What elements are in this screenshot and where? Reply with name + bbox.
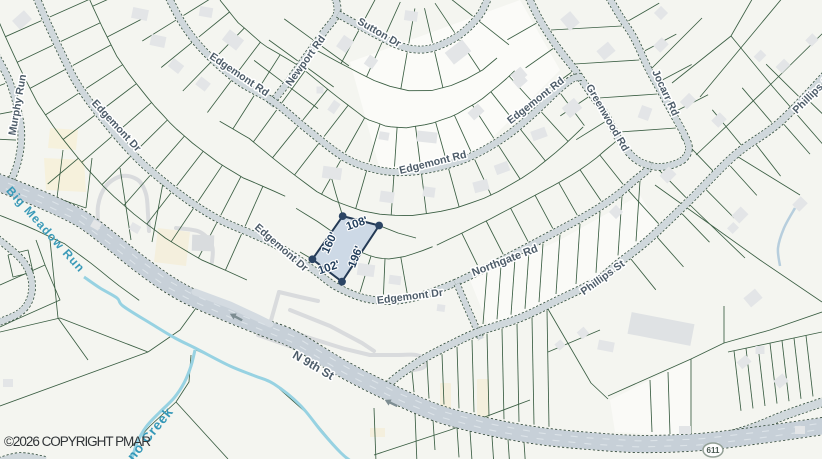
svg-text:611: 611 (707, 446, 720, 455)
svg-text:©2026 COPYRIGHT PMAR: ©2026 COPYRIGHT PMAR (4, 434, 151, 449)
